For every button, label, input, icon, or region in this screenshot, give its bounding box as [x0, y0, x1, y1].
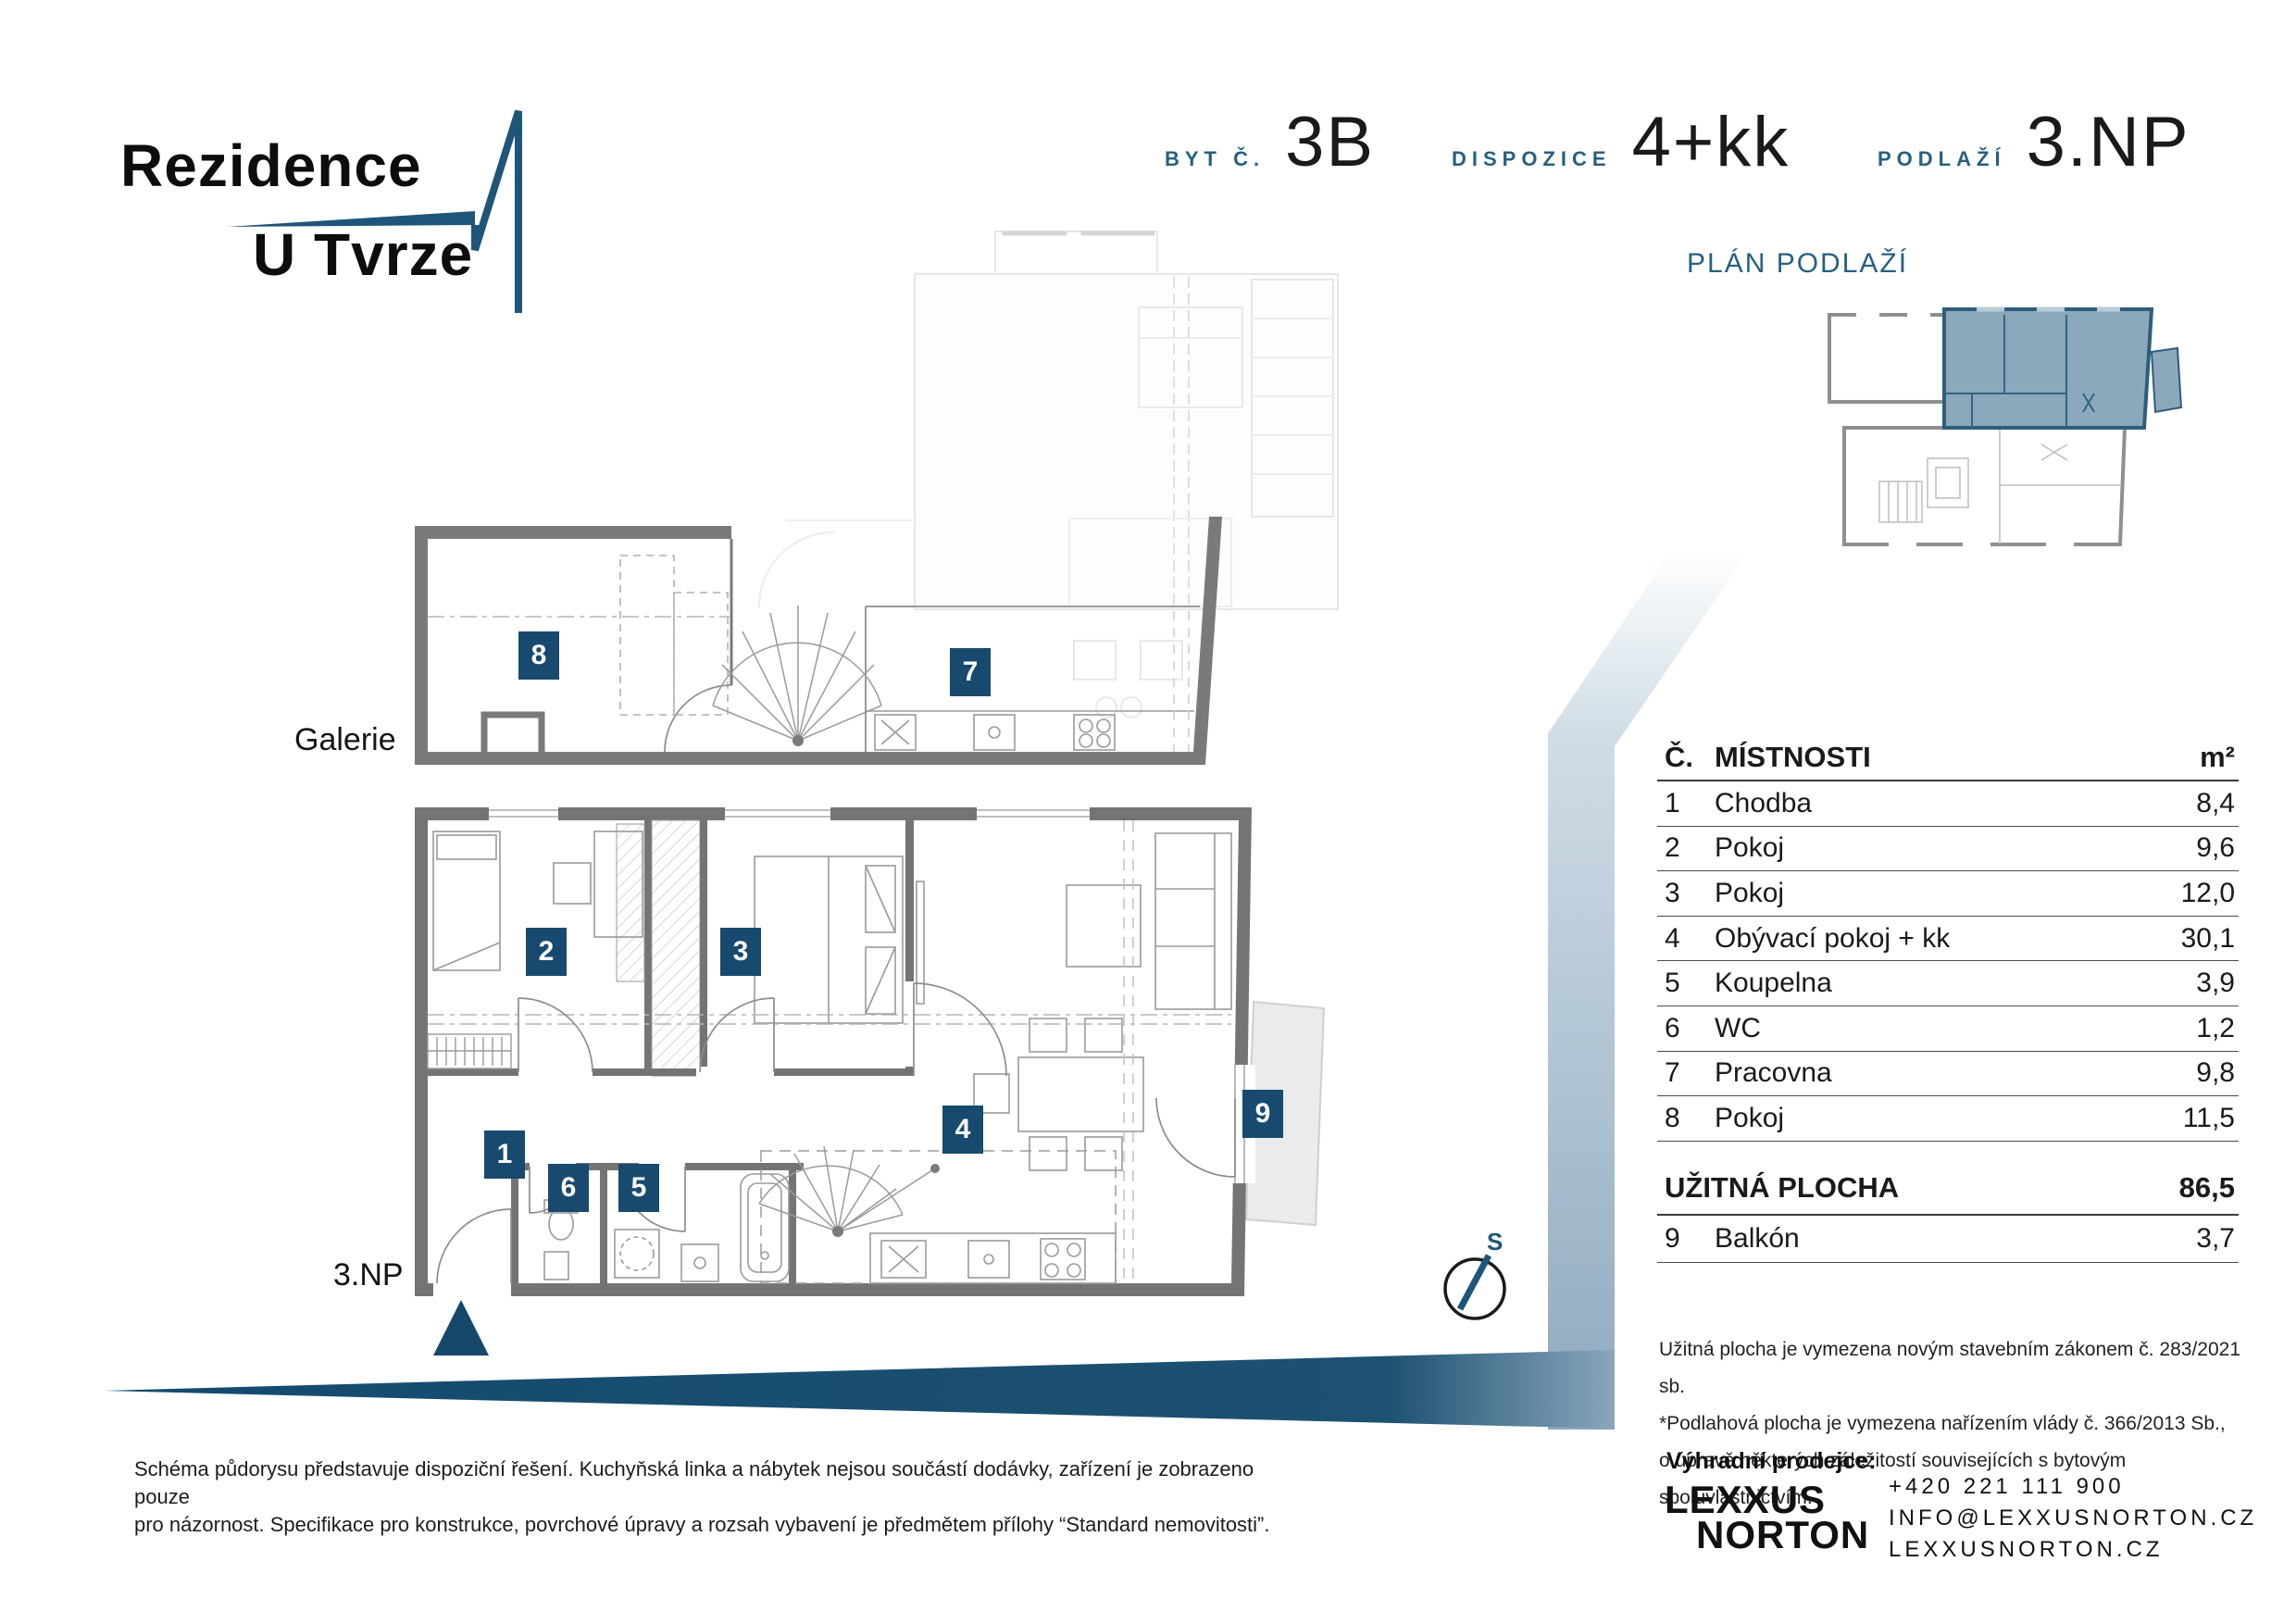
highlighted-unit [1944, 309, 2181, 428]
disclaimer-line: Schéma půdorysu představuje dispoziční ř… [134, 1455, 1301, 1511]
footnote-line: Užitná plocha je vymezena novým stavební… [1659, 1331, 2252, 1405]
north-arrow-icon [433, 1300, 489, 1355]
table-header: Č. MÍSTNOSTI m² [1657, 728, 2239, 781]
table-row: 4 Obývací pokoj + kk 30,1 [1657, 917, 2239, 962]
seller-email: INFO@LEXXUSNORTON.CZ [1889, 1505, 2257, 1531]
unit-value: 3B [1285, 107, 1375, 178]
logo-line1: Rezidence [120, 131, 422, 200]
table-row: 7 Pracovna 9,8 [1657, 1052, 2239, 1097]
seller-web: LEXXUSNORTON.CZ [1889, 1537, 2164, 1563]
floor-label: PODLAŽÍ [1878, 147, 2006, 171]
seller-phone: +420 221 111 900 [1889, 1474, 2125, 1500]
main-floor-plan [415, 804, 1324, 1298]
compass-north-label: S [1487, 1228, 1503, 1256]
floor-level-label: 3.NP [333, 1257, 404, 1293]
seller-brand-line2: NORTON [1696, 1513, 1869, 1557]
col-area: m² [2200, 741, 2239, 774]
room-badge-2: 2 [526, 928, 567, 976]
room-badge-1: 1 [484, 1131, 525, 1179]
flyer-page: Rezidence U Tvrze BYT Č. 3B DISPOZICE 4+… [0, 0, 2296, 1624]
mini-floor-plan [1829, 309, 2181, 548]
footnote-line: *Podlahová plocha je vymezena nařízením … [1659, 1405, 2252, 1443]
table-total-row: UŽITNÁ PLOCHA 86,5 [1657, 1162, 2239, 1216]
table-row: 3 Pokoj 12,0 [1657, 871, 2239, 917]
logo-line2: U Tvrze [253, 220, 473, 289]
disclaimer-line: pro názornost. Specifikace pro konstrukc… [134, 1511, 1301, 1539]
disclaimer: Schéma půdorysu představuje dispoziční ř… [134, 1455, 1301, 1539]
total-value: 86,5 [2179, 1171, 2239, 1205]
table-row: 6 WC 1,2 [1657, 1006, 2239, 1052]
table-row: 5 Koupelna 3,9 [1657, 961, 2239, 1006]
seller-label: Výhradní prodejce: [1666, 1448, 1876, 1475]
room-badge-4: 4 [942, 1106, 983, 1154]
room-badge-3: 3 [720, 928, 761, 976]
room-badge-8: 8 [518, 631, 559, 680]
unit-label: BYT Č. [1165, 147, 1265, 171]
gallery-label: Galerie [294, 722, 396, 758]
table-row: 9 Balkón 3,7 [1657, 1216, 2239, 1263]
gallery-floor-plan [415, 231, 1338, 765]
col-name: MÍSTNOSTI [1715, 741, 2200, 774]
floor-value: 3.NP [2027, 107, 2190, 178]
compass-icon [1445, 1255, 1504, 1318]
total-label: UŽITNÁ PLOCHA [1657, 1171, 2179, 1205]
table-row: 8 Pokoj 11,5 [1657, 1096, 2239, 1142]
room-badge-7: 7 [950, 648, 991, 696]
table-row: 2 Pokoj 9,6 [1657, 827, 2239, 872]
layout-value: 4+kk [1632, 107, 1791, 178]
col-number: Č. [1657, 741, 1715, 774]
layout-label: DISPOZICE [1452, 147, 1612, 171]
room-badge-9: 9 [1242, 1090, 1283, 1138]
room-badge-6: 6 [548, 1164, 589, 1212]
room-badge-5: 5 [618, 1164, 659, 1212]
layout-group: DISPOZICE 4+kk [1452, 107, 1790, 178]
floor-group: PODLAŽÍ 3.NP [1878, 107, 2190, 178]
floor-plan-title: PLÁN PODLAŽÍ [1687, 248, 1908, 280]
unit-number-group: BYT Č. 3B [1165, 107, 1375, 178]
table-row: 1 Chodba 8,4 [1657, 781, 2239, 827]
room-table: Č. MÍSTNOSTI m² 1 Chodba 8,4 2 Pokoj 9,6… [1657, 728, 2239, 1263]
